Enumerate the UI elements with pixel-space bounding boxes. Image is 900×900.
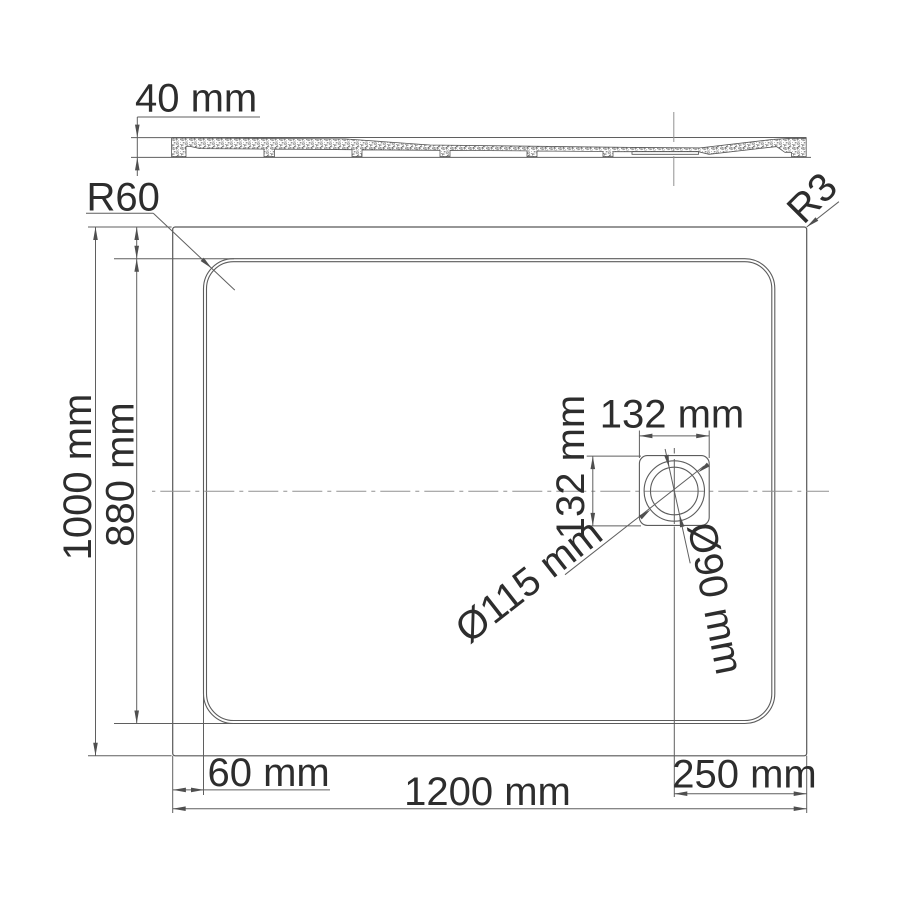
- svg-text:250 mm: 250 mm: [672, 753, 817, 797]
- svg-text:40 mm: 40 mm: [135, 77, 257, 121]
- svg-text:132 mm: 132 mm: [600, 393, 745, 437]
- svg-text:1000 mm: 1000 mm: [56, 394, 100, 561]
- svg-text:1200 mm: 1200 mm: [404, 770, 571, 814]
- svg-text:880 mm: 880 mm: [99, 402, 143, 547]
- svg-text:60 mm: 60 mm: [208, 751, 330, 795]
